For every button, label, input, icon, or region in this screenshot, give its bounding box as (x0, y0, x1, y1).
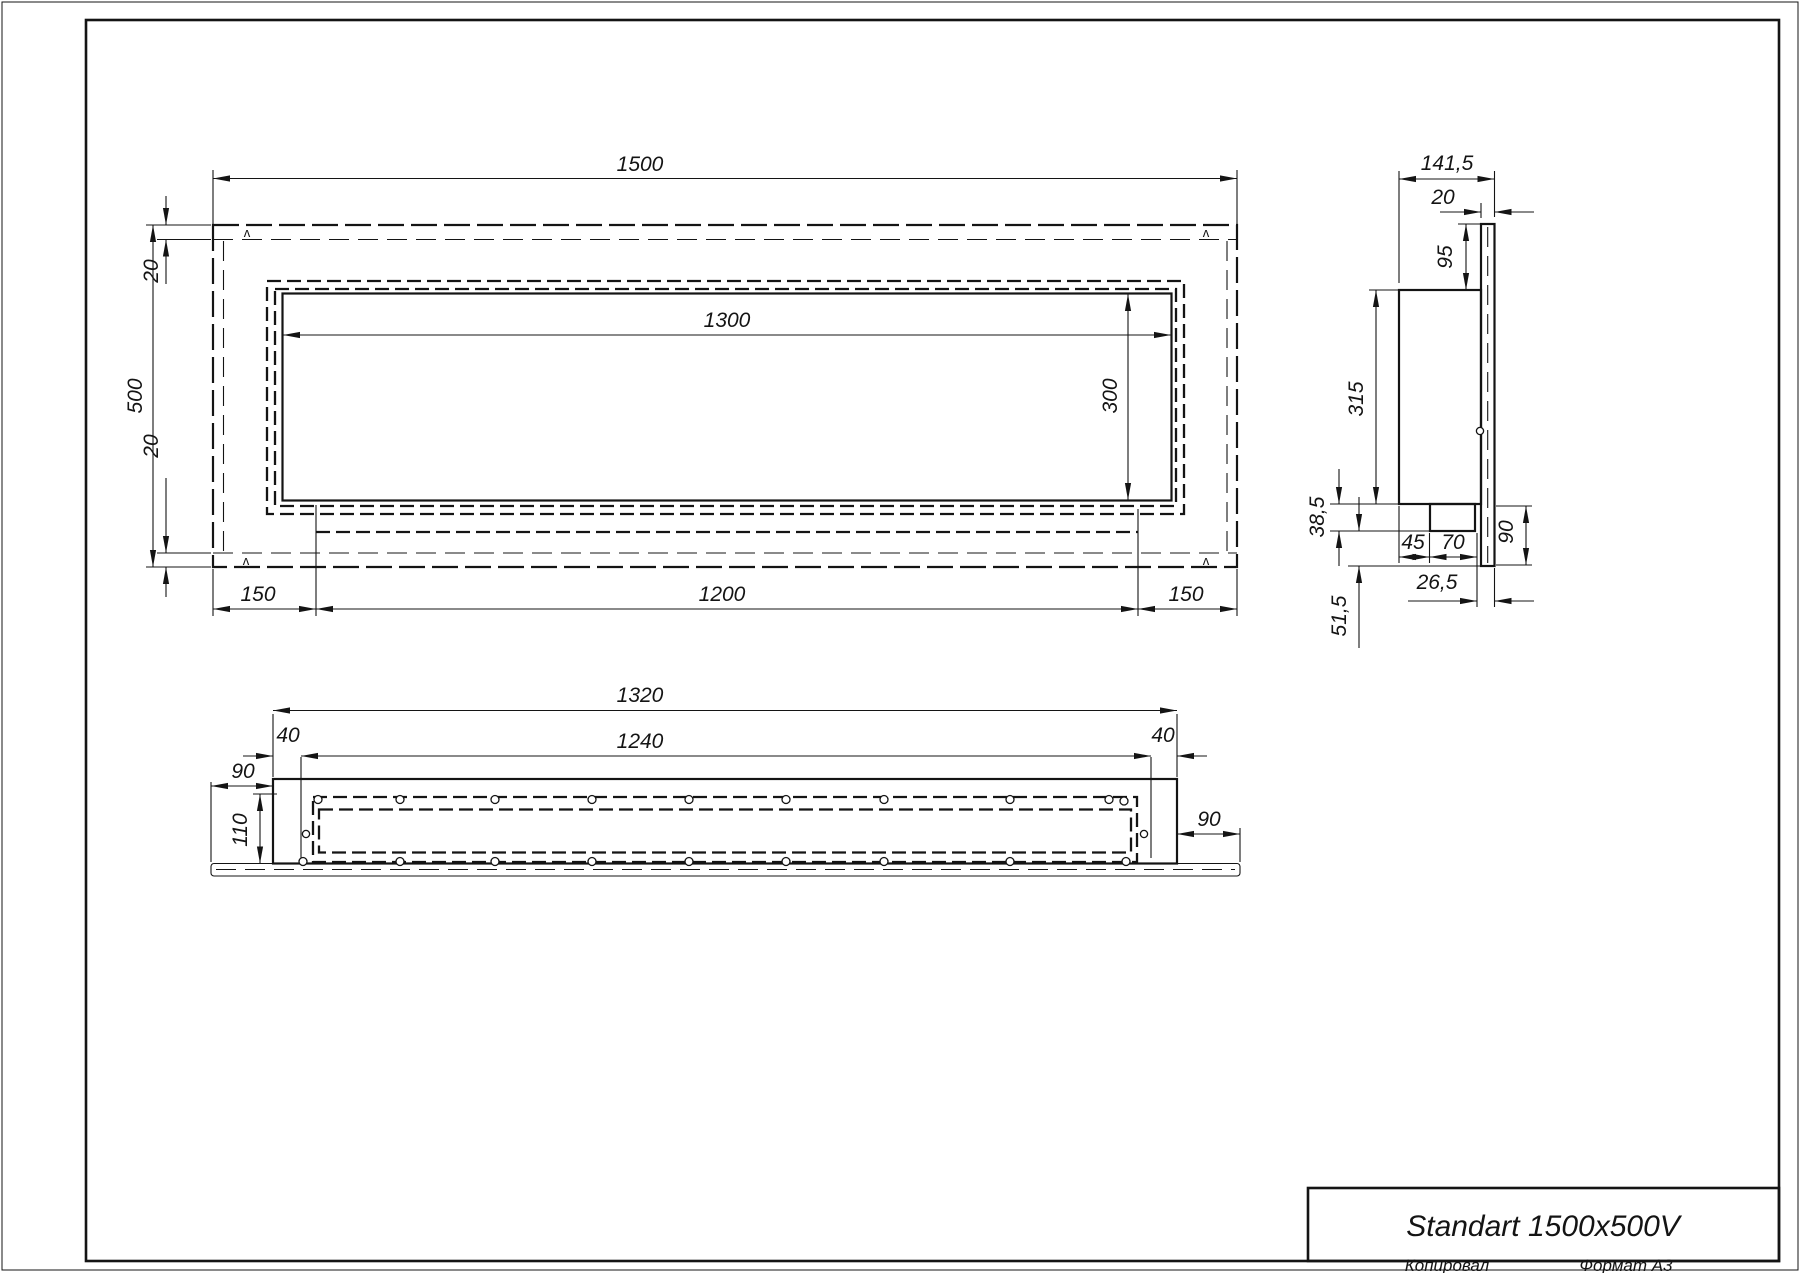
weld-mark-icon: ʌ (1203, 553, 1210, 568)
paper-edge (2, 2, 1798, 1270)
dim-overall-depth: 141,5 (1421, 152, 1474, 175)
dim-right-wall: 40 (1151, 724, 1175, 747)
front-outer-contour (213, 225, 1237, 567)
dim-foot-to-front-gap: 26,5 (1416, 571, 1458, 594)
weld-mark-icon: ʌ (1203, 225, 1210, 240)
dim-foot-depth: 70 (1441, 531, 1465, 554)
dim-left-margin: 150 (240, 583, 275, 606)
dim-lower-front-height: 90 (1495, 520, 1518, 544)
weld-mark-icon: ʌ (244, 225, 251, 240)
dim-top-inset: 20 (140, 259, 163, 284)
drawing-canvas: ʌ ʌ ʌ ʌ 1500 500 20 20 1300 300 (0, 0, 1800, 1273)
dim-lower-recess: 51,5 (1328, 595, 1351, 636)
dim-left-overhang: 90 (231, 760, 255, 783)
dim-top-recess: 95 (1434, 245, 1457, 269)
dim-opening-width: 1300 (704, 309, 751, 332)
dim-bottom-inset: 20 (140, 434, 163, 459)
dim-inner-length: 1240 (617, 730, 664, 753)
side-view: 141,5 20 95 315 38,5 45 70 26,5 (1306, 152, 1534, 648)
title-block: Standart 1500x500V Копировал Формат А3 (1308, 1188, 1779, 1273)
front-view: ʌ ʌ ʌ ʌ 1500 500 20 20 1300 300 (124, 153, 1237, 616)
dim-overall-width: 1500 (617, 153, 664, 176)
dim-overall-height: 500 (124, 378, 147, 413)
dim-box-length: 1320 (617, 684, 664, 707)
weld-mark-icon: ʌ (243, 553, 250, 568)
dim-burner-width: 1200 (699, 583, 746, 606)
dim-left-wall: 40 (276, 724, 300, 747)
dim-bottom-recess: 38,5 (1306, 496, 1329, 537)
sheet-border (2, 2, 1798, 1270)
format-label: Формат А3 (1579, 1256, 1673, 1273)
dim-front-flange-depth: 20 (1430, 186, 1455, 209)
side-foot (1430, 504, 1475, 531)
drawing-sheet: ʌ ʌ ʌ ʌ 1500 500 20 20 1300 300 (0, 0, 1800, 1273)
bottom-hidden-frame-inner (319, 810, 1131, 853)
side-body (1399, 290, 1481, 504)
copied-by-label: Копировал (1405, 1256, 1490, 1273)
drawing-frame (86, 20, 1779, 1261)
dim-opening-height: 300 (1099, 378, 1122, 413)
bottom-body (273, 779, 1177, 864)
bottom-view: 1320 1240 40 40 90 110 90 (211, 684, 1240, 876)
drawing-title: Standart 1500x500V (1406, 1210, 1683, 1243)
dim-box-depth: 110 (229, 813, 252, 847)
side-hole (1476, 427, 1483, 434)
dim-right-overhang: 90 (1197, 808, 1221, 831)
dim-foot-inset: 45 (1401, 531, 1425, 554)
dim-body-height: 315 (1345, 381, 1368, 416)
dim-right-margin: 150 (1168, 583, 1203, 606)
